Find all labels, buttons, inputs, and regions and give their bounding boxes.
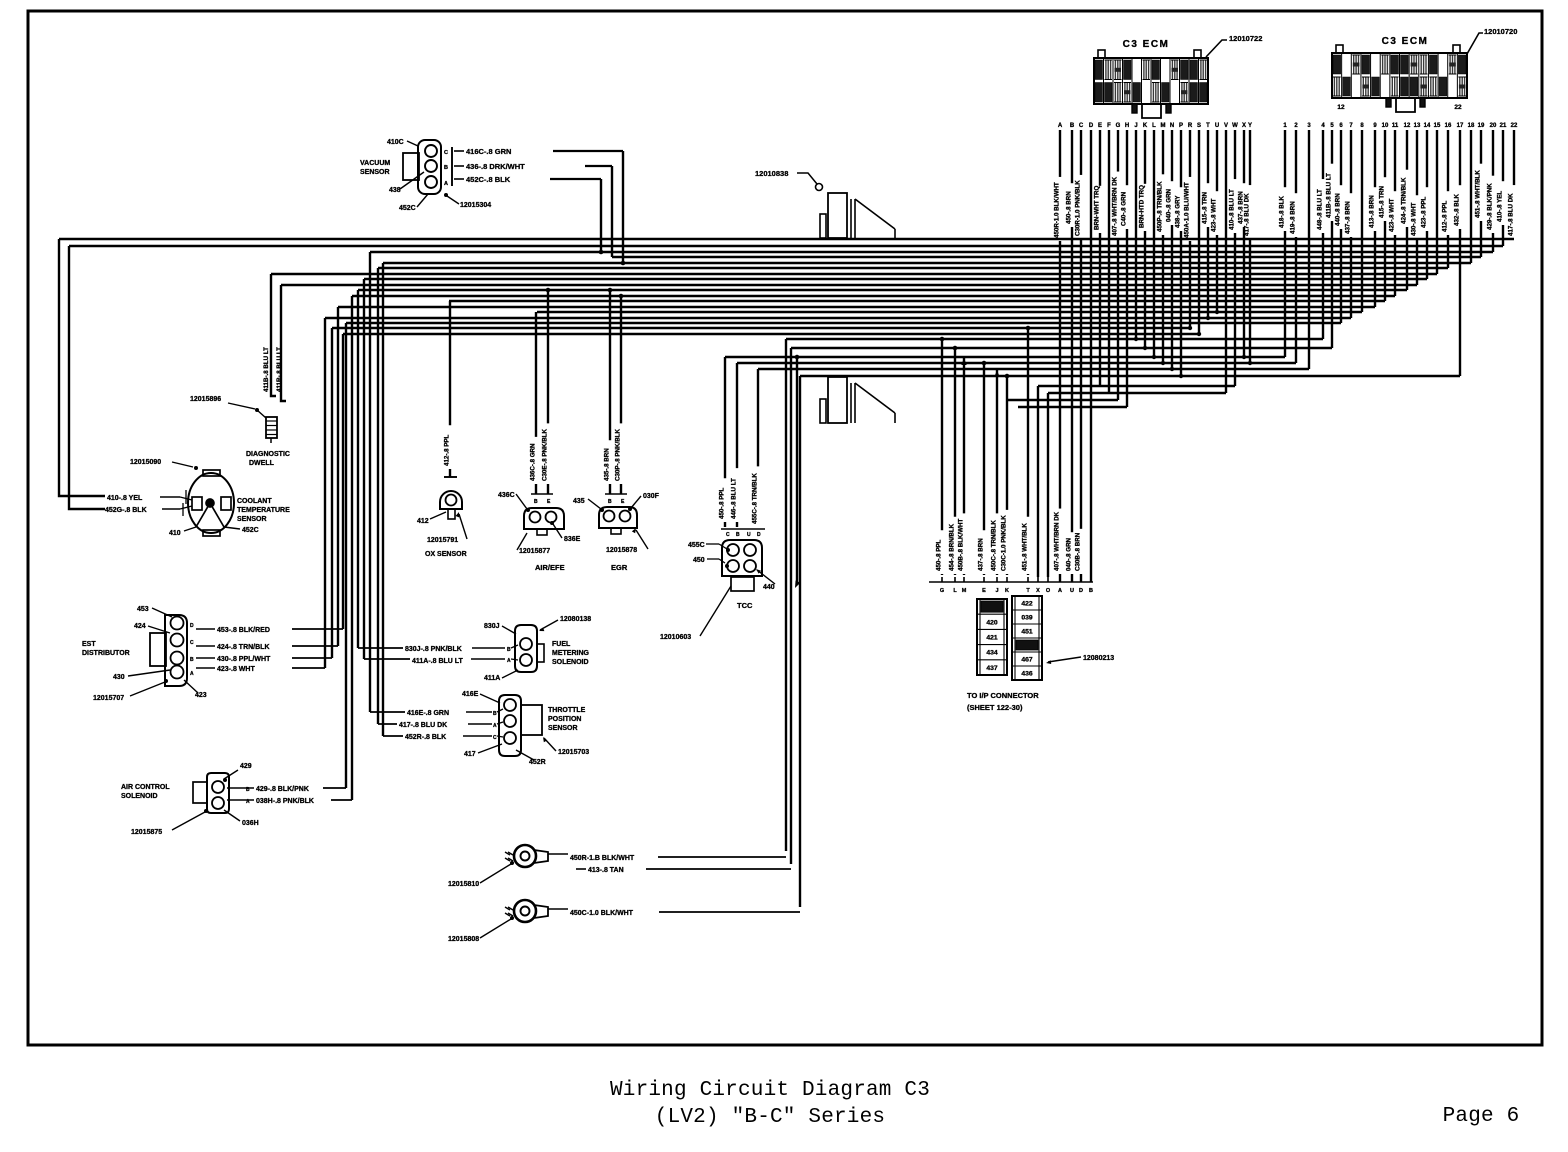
svg-text:20: 20 <box>1490 123 1497 129</box>
svg-text:K: K <box>1005 588 1009 594</box>
svg-text:455C: 455C <box>688 542 705 549</box>
svg-text:D: D <box>1079 588 1083 594</box>
svg-text:418-.8 BLK: 418-.8 BLK <box>1279 195 1286 228</box>
svg-text:030F: 030F <box>643 493 660 500</box>
svg-text:450A-1.0 BLU/WHT: 450A-1.0 BLU/WHT <box>1184 182 1191 238</box>
svg-text:OX SENSOR: OX SENSOR <box>425 551 467 558</box>
svg-text:C40-.8 GRN: C40-.8 GRN <box>1121 191 1128 226</box>
svg-text:C: C <box>726 532 730 538</box>
svg-text:13: 13 <box>1414 123 1421 129</box>
svg-text:452R: 452R <box>529 759 546 766</box>
svg-text:430: 430 <box>113 674 125 681</box>
svg-text:410C: 410C <box>387 139 404 146</box>
svg-text:412-.8 PPL: 412-.8 PPL <box>444 434 451 466</box>
svg-text:K: K <box>1143 123 1148 129</box>
svg-text:421: 421 <box>986 635 998 642</box>
svg-text:BRN-HTD TRQ: BRN-HTD TRQ <box>1139 185 1146 228</box>
svg-text:411B-.8 BLU LT: 411B-.8 BLU LT <box>263 347 270 392</box>
svg-text:X: X <box>1036 588 1040 594</box>
svg-text:A: A <box>190 671 194 677</box>
svg-text:E: E <box>982 588 986 594</box>
svg-text:17: 17 <box>1457 123 1464 129</box>
svg-text:830J-.8 PNK/BLK: 830J-.8 PNK/BLK <box>405 646 462 653</box>
svg-text:429: 429 <box>240 763 252 770</box>
svg-text:U: U <box>1215 123 1219 129</box>
svg-text:12015703: 12015703 <box>558 749 589 756</box>
svg-text:413-.8 BRN: 413-.8 BRN <box>1369 195 1376 228</box>
svg-text:COOLANT: COOLANT <box>237 498 272 505</box>
svg-text:19: 19 <box>1478 123 1485 129</box>
svg-text:450R-1.B BLK/WHT: 450R-1.B BLK/WHT <box>570 855 635 862</box>
svg-text:P: P <box>1179 123 1183 129</box>
svg-text:W: W <box>1232 123 1238 129</box>
svg-text:451: 451 <box>1021 629 1033 636</box>
svg-text:450-.8 BRN: 450-.8 BRN <box>1066 191 1073 224</box>
svg-text:417-.8 BLU DK: 417-.8 BLU DK <box>399 722 447 729</box>
svg-text:452G-.8 BLK: 452G-.8 BLK <box>105 507 147 514</box>
svg-text:DWELL: DWELL <box>249 460 275 467</box>
svg-text:18: 18 <box>1468 123 1475 129</box>
svg-text:417-.8 BLU DK: 417-.8 BLU DK <box>1508 193 1515 236</box>
svg-text:467: 467 <box>1021 657 1033 664</box>
svg-text:451-.8 WHT/BLK: 451-.8 WHT/BLK <box>1022 523 1029 571</box>
svg-text:A: A <box>1058 123 1063 129</box>
svg-text:437: 437 <box>986 665 998 672</box>
svg-text:B: B <box>736 532 740 538</box>
svg-text:A: A <box>444 181 448 187</box>
svg-text:12015304: 12015304 <box>460 202 491 209</box>
svg-text:12015090: 12015090 <box>130 459 161 466</box>
svg-text:S: S <box>1197 123 1201 129</box>
svg-text:040-.8 GRN: 040-.8 GRN <box>1066 537 1073 571</box>
svg-text:SENSOR: SENSOR <box>360 169 390 176</box>
svg-text:TCC: TCC <box>737 601 753 610</box>
svg-text:424: 424 <box>134 623 146 630</box>
svg-text:450R-1.0 BLK/WHT: 450R-1.0 BLK/WHT <box>1054 182 1061 238</box>
svg-text:BRN-WHT TRQ: BRN-WHT TRQ <box>1094 185 1101 230</box>
svg-text:438: 438 <box>389 187 401 194</box>
svg-text:L: L <box>1152 123 1156 129</box>
svg-text:830J: 830J <box>484 623 500 630</box>
svg-text:C3 ECM: C3 ECM <box>1123 39 1170 50</box>
svg-text:407-.8 WHT/BRN DK: 407-.8 WHT/BRN DK <box>1054 511 1061 571</box>
svg-text:N: N <box>1170 123 1174 129</box>
svg-text:036H: 036H <box>242 820 259 827</box>
svg-text:12080213: 12080213 <box>1083 655 1114 662</box>
svg-text:10: 10 <box>1382 123 1389 129</box>
svg-text:424-.8 TRN/BLK: 424-.8 TRN/BLK <box>1401 177 1408 224</box>
svg-text:12: 12 <box>1337 104 1345 111</box>
svg-text:POSITION: POSITION <box>548 716 581 723</box>
svg-text:12010720: 12010720 <box>1484 27 1517 36</box>
svg-text:C30R-1.0 PNK/BLK: C30R-1.0 PNK/BLK <box>1075 180 1082 236</box>
svg-text:423-.8 WHT: 423-.8 WHT <box>1389 198 1396 232</box>
svg-text:450: 450 <box>693 557 705 564</box>
svg-text:11: 11 <box>1392 123 1399 129</box>
svg-text:O: O <box>1046 588 1051 594</box>
svg-text:407-.8 WHT/BRN DK: 407-.8 WHT/BRN DK <box>1112 176 1119 236</box>
svg-text:411R-.8 BLU LT: 411R-.8 BLU LT <box>276 347 283 392</box>
svg-text:416E: 416E <box>462 691 479 698</box>
svg-text:12015877: 12015877 <box>519 548 550 555</box>
svg-text:C: C <box>493 735 497 741</box>
svg-text:423-.8 WHT: 423-.8 WHT <box>217 666 255 673</box>
svg-text:TO I/P CONNECTOR: TO I/P CONNECTOR <box>967 691 1039 700</box>
svg-text:SOLENOID: SOLENOID <box>552 659 589 666</box>
svg-text:429-.8 BLK/PNK: 429-.8 BLK/PNK <box>256 786 309 793</box>
svg-text:438-.8 GRY: 438-.8 GRY <box>1175 195 1182 228</box>
svg-text:B: B <box>534 499 538 505</box>
svg-text:M: M <box>962 588 967 594</box>
svg-text:A: A <box>1058 588 1062 594</box>
svg-text:B: B <box>246 787 250 793</box>
svg-text:METERING: METERING <box>552 650 590 657</box>
svg-text:AIR/EFE: AIR/EFE <box>535 563 565 572</box>
svg-text:B: B <box>507 647 511 653</box>
svg-text:411A-.8 BLU LT: 411A-.8 BLU LT <box>412 658 464 665</box>
svg-text:A: A <box>246 799 250 805</box>
svg-text:B: B <box>1089 588 1093 594</box>
svg-text:440-.8 BRN: 440-.8 BRN <box>1335 193 1342 226</box>
svg-text:436-.8 DRK/WHT: 436-.8 DRK/WHT <box>466 162 525 171</box>
svg-text:412-.8 PPL: 412-.8 PPL <box>1442 200 1449 232</box>
svg-text:451-.8 WHT/BLK: 451-.8 WHT/BLK <box>1475 170 1482 218</box>
svg-text:423: 423 <box>195 692 207 699</box>
svg-text:21: 21 <box>1500 123 1507 129</box>
svg-text:430-.8 WHT: 430-.8 WHT <box>1411 202 1418 236</box>
svg-text:Y: Y <box>1248 123 1252 129</box>
svg-text:H: H <box>1125 123 1129 129</box>
svg-text:(SHEET 122-30): (SHEET 122-30) <box>967 703 1023 712</box>
svg-text:412: 412 <box>417 518 429 525</box>
svg-text:AIR CONTROL: AIR CONTROL <box>121 784 170 791</box>
svg-text:FUEL: FUEL <box>552 641 571 648</box>
svg-text:429-.8 BLK/PNK: 429-.8 BLK/PNK <box>1487 183 1494 230</box>
svg-text:12015810: 12015810 <box>448 881 479 888</box>
svg-text:436C: 436C <box>498 492 515 499</box>
svg-text:410: 410 <box>169 530 181 537</box>
svg-text:452C: 452C <box>399 205 416 212</box>
svg-text:SOLENOID: SOLENOID <box>121 793 158 800</box>
svg-text:D: D <box>1089 123 1094 129</box>
svg-text:452C: 452C <box>242 527 259 534</box>
svg-text:12010838: 12010838 <box>755 169 788 178</box>
svg-text:C: C <box>190 640 194 646</box>
svg-text:B: B <box>493 711 497 717</box>
svg-text:410-.8 YEL: 410-.8 YEL <box>1497 191 1504 222</box>
svg-text:452R-.8 BLK: 452R-.8 BLK <box>405 734 446 741</box>
svg-text:C: C <box>1079 123 1084 129</box>
svg-text:B: B <box>1070 123 1075 129</box>
svg-text:446-.8 BLU LT: 446-.8 BLU LT <box>731 478 738 519</box>
svg-text:SENSOR: SENSOR <box>237 516 267 523</box>
svg-text:436: 436 <box>1021 671 1033 678</box>
svg-text:434: 434 <box>986 650 998 657</box>
svg-text:C3 ECM: C3 ECM <box>1382 36 1429 47</box>
svg-text:12015875: 12015875 <box>131 829 162 836</box>
svg-text:440: 440 <box>763 584 775 591</box>
svg-text:423-.8 WHT: 423-.8 WHT <box>1211 198 1218 232</box>
svg-text:14: 14 <box>1424 123 1431 129</box>
svg-text:415-.8 TRN: 415-.8 TRN <box>1202 191 1209 224</box>
svg-text:411B-.8 BLU LT: 411B-.8 BLU LT <box>1326 173 1333 218</box>
svg-text:J: J <box>995 588 998 594</box>
svg-text:G: G <box>940 588 944 594</box>
svg-text:410-.8 YEL: 410-.8 YEL <box>107 495 143 502</box>
svg-text:12015808: 12015808 <box>448 936 479 943</box>
svg-text:15: 15 <box>1434 123 1441 129</box>
svg-text:22: 22 <box>1454 104 1462 111</box>
svg-text:039: 039 <box>1021 615 1033 622</box>
svg-text:450B-.8 BLK/WHT: 450B-.8 BLK/WHT <box>958 519 965 571</box>
svg-text:453: 453 <box>137 606 149 613</box>
svg-text:12015707: 12015707 <box>93 695 124 702</box>
svg-text:448-.8 BLU LT: 448-.8 BLU LT <box>1317 189 1324 230</box>
svg-text:SENSOR: SENSOR <box>548 725 578 732</box>
svg-text:12010722: 12010722 <box>1229 34 1262 43</box>
svg-text:U: U <box>747 532 751 538</box>
svg-text:410-.8 BLU LT: 410-.8 BLU LT <box>1229 189 1236 230</box>
svg-text:T: T <box>1206 123 1210 129</box>
svg-text:450C-.8 TRN/BLK: 450C-.8 TRN/BLK <box>991 520 998 571</box>
svg-text:12010603: 12010603 <box>660 634 691 641</box>
svg-text:B: B <box>608 499 612 505</box>
svg-text:450C-1.0 BLK/WHT: 450C-1.0 BLK/WHT <box>570 910 634 917</box>
svg-text:411A: 411A <box>484 675 500 682</box>
svg-text:415-.8 TRN: 415-.8 TRN <box>1379 185 1386 218</box>
svg-text:C30P-.8 PNK/BLK: C30P-.8 PNK/BLK <box>615 429 622 481</box>
svg-text:423-.8 PPL: 423-.8 PPL <box>1421 196 1428 228</box>
svg-text:424-.8 TRN/BLK: 424-.8 TRN/BLK <box>217 644 270 651</box>
svg-text:D: D <box>190 623 194 629</box>
svg-text:454-.8 BRN/BLK: 454-.8 BRN/BLK <box>949 523 956 571</box>
svg-text:437-.8 BRN: 437-.8 BRN <box>978 538 985 571</box>
svg-text:038H-.8 PNK/BLK: 038H-.8 PNK/BLK <box>256 798 314 805</box>
svg-text:437-.8 BRN: 437-.8 BRN <box>1345 201 1352 234</box>
svg-text:F: F <box>1107 123 1111 129</box>
svg-text:12015896: 12015896 <box>190 396 221 403</box>
svg-text:450-.8 PPL: 450-.8 PPL <box>719 487 726 519</box>
svg-text:C30C-1.0 PNK/BLK: C30C-1.0 PNK/BLK <box>1001 515 1008 571</box>
svg-text:422: 422 <box>1021 601 1033 608</box>
svg-text:12015791: 12015791 <box>427 537 458 544</box>
svg-text:C: C <box>444 150 448 156</box>
svg-text:Page 6: Page 6 <box>1443 1105 1520 1128</box>
svg-text:B: B <box>190 657 194 663</box>
svg-text:D: D <box>757 532 761 538</box>
svg-text:R: R <box>1188 123 1193 129</box>
svg-text:413-.8 TAN: 413-.8 TAN <box>588 867 624 874</box>
svg-text:435-.8 BRN: 435-.8 BRN <box>604 448 611 481</box>
svg-text:C30E-.8 PNK/BLK: C30E-.8 PNK/BLK <box>542 429 549 481</box>
svg-text:A: A <box>493 723 497 729</box>
svg-text:430-.8 PPL/WHT: 430-.8 PPL/WHT <box>217 656 271 663</box>
svg-text:C30B-.8 BRN: C30B-.8 BRN <box>1075 532 1082 571</box>
svg-text:TEMPERATURE: TEMPERATURE <box>237 507 290 514</box>
svg-text:U: U <box>1070 588 1074 594</box>
svg-text:THROTTLE: THROTTLE <box>548 707 586 714</box>
svg-text:453-.8 BLK/RED: 453-.8 BLK/RED <box>217 627 270 634</box>
svg-text:Wiring Circuit Diagram C3: Wiring Circuit Diagram C3 <box>610 1079 930 1102</box>
svg-text:450-.8 PPL: 450-.8 PPL <box>936 539 943 571</box>
svg-text:455C-.8 TRN/BLK: 455C-.8 TRN/BLK <box>752 473 759 524</box>
svg-text:836E: 836E <box>564 536 581 543</box>
svg-text:12: 12 <box>1404 123 1411 129</box>
svg-text:DIAGNOSTIC: DIAGNOSTIC <box>246 451 290 458</box>
svg-text:452C-.8 BLK: 452C-.8 BLK <box>466 175 511 184</box>
svg-text:J: J <box>1134 123 1137 129</box>
svg-text:12015878: 12015878 <box>606 547 637 554</box>
svg-text:12080138: 12080138 <box>560 616 591 623</box>
svg-text:420: 420 <box>986 619 998 626</box>
svg-text:G: G <box>1116 123 1121 129</box>
svg-text:450P-.8 TRN/BLK: 450P-.8 TRN/BLK <box>1157 181 1164 232</box>
svg-text:417: 417 <box>464 751 476 758</box>
svg-text:M: M <box>1161 123 1166 129</box>
svg-text:436C-.8 GRN: 436C-.8 GRN <box>530 443 537 481</box>
svg-text:(LV2) "B-C" Series: (LV2) "B-C" Series <box>655 1106 885 1129</box>
svg-text:X: X <box>1242 123 1246 129</box>
svg-text:VACUUM: VACUUM <box>360 160 390 167</box>
svg-text:EST: EST <box>82 641 96 648</box>
svg-text:040-.8 GRN: 040-.8 GRN <box>1166 188 1173 222</box>
svg-text:B: B <box>444 165 448 171</box>
svg-text:DISTRIBUTOR: DISTRIBUTOR <box>82 650 130 657</box>
svg-text:416C-.8 GRN: 416C-.8 GRN <box>466 147 511 156</box>
svg-text:435: 435 <box>573 498 585 505</box>
svg-text:EGR: EGR <box>611 563 628 572</box>
svg-text:16: 16 <box>1445 123 1452 129</box>
svg-text:419-.8 BRN: 419-.8 BRN <box>1290 201 1297 234</box>
svg-text:417-.8 BLU DK: 417-.8 BLU DK <box>1244 193 1251 236</box>
svg-text:V: V <box>1224 123 1228 129</box>
svg-text:A: A <box>507 658 511 664</box>
svg-text:432-.8 BLK: 432-.8 BLK <box>1454 193 1461 226</box>
svg-text:E: E <box>1098 123 1102 129</box>
svg-text:416E-.8 GRN: 416E-.8 GRN <box>407 710 449 717</box>
svg-text:22: 22 <box>1511 123 1518 129</box>
